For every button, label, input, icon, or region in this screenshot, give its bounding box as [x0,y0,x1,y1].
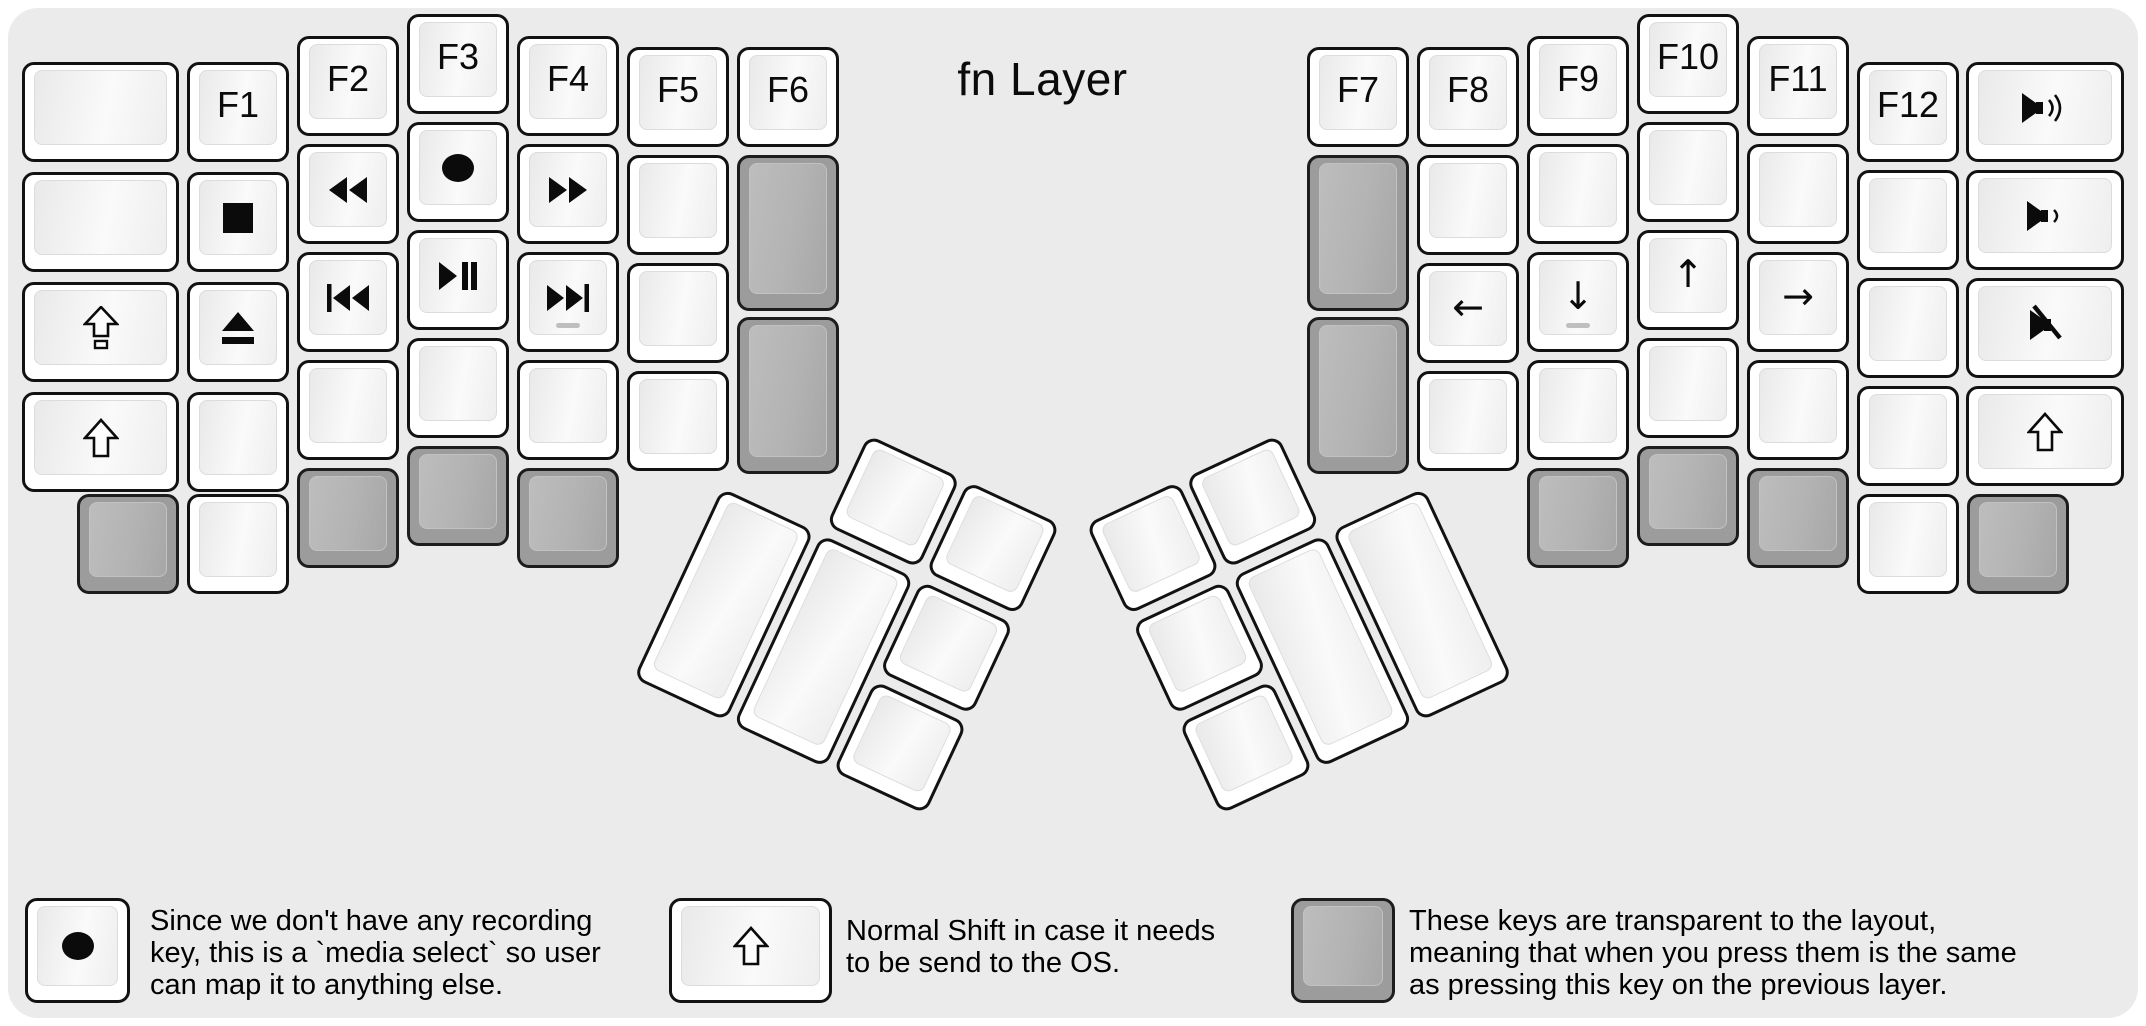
arrow-up-icon: ↑ [1672,255,1704,293]
key-blank [407,338,509,438]
keycap-top [34,290,167,365]
keycap-top [1759,368,1837,443]
key-label: F2 [327,58,369,100]
keycap-top [1978,286,2112,361]
keycap-top [639,163,717,238]
key-f1: F1 [187,62,289,162]
key-blank [1417,371,1519,471]
shift-icon [2027,412,2063,452]
keycap-top [529,260,607,335]
eject-icon [220,311,256,345]
legend-text-line: meaning that when you press them is the … [1409,937,2017,969]
key-play-pause [407,230,509,330]
key-label: F7 [1337,69,1379,111]
key-label: F11 [1768,58,1827,100]
key-f5: F5 [627,47,729,147]
keycap-top: F10 [1649,22,1727,97]
keycap-top [1100,494,1202,595]
key-prev-track [297,252,399,352]
key-blank [627,155,729,255]
mute-icon [2024,304,2066,344]
record-icon [60,930,96,962]
key-label: F10 [1657,36,1719,78]
key-transparent [407,446,509,546]
keycap-top [749,163,827,294]
keycap-top [309,368,387,443]
keyboard-layout-sheet: fn Layer F1F2F3F4F5F6F7F8←F9↓F10↑F11→F12… [0,0,2146,1026]
keycap-top [1978,70,2112,145]
keycap-top [1869,178,1947,253]
legend-text-line: key, this is a `media select` so user [150,937,601,969]
keycap-top [1759,476,1837,551]
key-blank [1857,494,1959,594]
key-volume-down [1966,170,2124,270]
key-arrow-right: → [1747,252,1849,352]
key-blank [1527,360,1629,460]
legend-text-line: can map it to anything else. [150,969,601,1001]
key-mute [1966,278,2124,378]
key-blank [1857,278,1959,378]
key-f8: F8 [1417,47,1519,147]
key-blank [1857,386,1959,486]
key-blank [1747,360,1849,460]
legend-text-line: to be send to the OS. [846,947,1215,979]
keycap-top [1539,152,1617,227]
arrow-right-icon: → [1782,277,1814,315]
key-caps-lock [22,282,179,382]
key-f4: F4 [517,36,619,136]
keycap-top [639,379,717,454]
key-transparent [1307,155,1409,311]
keycap-top [1978,178,2112,253]
keycap-top [1649,346,1727,421]
keycap-top [309,152,387,227]
key-transparent [517,468,619,568]
keycap-top [199,502,277,577]
key-fast-forward [517,144,619,244]
keycap-top [419,130,497,205]
keycap-top: F4 [529,44,607,119]
keycap-top: F3 [419,22,497,97]
key-transparent [737,155,839,311]
stop-icon [223,203,253,233]
keycap-top [1146,593,1248,694]
keycap-top [37,906,118,986]
keycap-top: ↓ [1539,260,1617,335]
key-transparent [1291,898,1395,1003]
legend-text: These keys are transparent to the layout… [1409,905,2017,1001]
keycap-top [1539,368,1617,443]
rewind-icon [329,177,367,203]
key-label: F1 [217,84,259,126]
legend-text: Normal Shift in case it needsto be send … [846,915,1215,979]
key-f3: F3 [407,14,509,114]
key-label: F12 [1877,84,1939,126]
key-f9: F9 [1527,36,1629,136]
key-arrow-up: ↑ [1637,230,1739,330]
next-track-icon [547,284,589,312]
legend-text-line: These keys are transparent to the layout… [1409,905,2017,937]
keycap-top [1759,152,1837,227]
shift-icon [733,926,769,966]
keycap-top [529,152,607,227]
key-blank [187,494,289,594]
key-blank [1637,338,1739,438]
key-blank [1747,144,1849,244]
keycap-top: F1 [199,70,277,145]
key-rewind [297,144,399,244]
key-arrow-left: ← [1417,263,1519,363]
keycap-top [1319,163,1397,294]
keycap-top [1193,693,1295,794]
keycap-top [529,368,607,443]
keycap-top [309,260,387,335]
key-f6: F6 [737,47,839,147]
keycap-top: F11 [1759,44,1837,119]
key-transparent [77,494,179,594]
keycap-top [419,454,497,529]
legend-text-line: Since we don't have any recording [150,905,601,937]
keycap-top [639,271,717,346]
keycap-top [309,476,387,551]
key-next-track [517,252,619,352]
key-transparent [1967,494,2069,594]
legend-text-line: as pressing this key on the previous lay… [1409,969,2017,1001]
key-blank [1527,144,1629,244]
keycap-top [199,180,277,255]
key-shift [22,392,179,492]
keycap-top: F9 [1539,44,1617,119]
key-eject [187,282,289,382]
keycap-top: ← [1429,271,1507,346]
keycap-top [419,346,497,421]
keycap-top: F2 [309,44,387,119]
layer-title: fn Layer [900,52,1185,106]
keycap-top: ↑ [1649,238,1727,313]
key-f12: F12 [1857,62,1959,162]
keycap-top [897,593,999,694]
keycap-top [34,400,167,475]
keycap-top [1869,394,1947,469]
record-icon [440,152,476,184]
keycap-top [844,447,946,548]
keycap-top: → [1759,260,1837,335]
key-record [25,898,130,1003]
keycap-top: F6 [749,55,827,130]
key-blank [1637,122,1739,222]
homing-bar [1566,323,1590,328]
key-label: F5 [657,69,699,111]
keycap-top: F7 [1319,55,1397,130]
key-transparent [1527,468,1629,568]
key-label: F6 [767,69,809,111]
keycap-top: F12 [1869,70,1947,145]
keycap-top [34,180,167,255]
key-label: F8 [1447,69,1489,111]
key-f10: F10 [1637,14,1739,114]
key-transparent [297,468,399,568]
key-label: F9 [1557,58,1599,100]
key-transparent [1637,446,1739,546]
key-record [407,122,509,222]
key-f11: F11 [1747,36,1849,136]
key-blank [22,62,179,162]
keycap-top [681,906,820,986]
keycap-top [1200,447,1302,548]
key-stop [187,172,289,272]
keycap-top [1979,502,2057,577]
keycap-top [1869,286,1947,361]
keycap-top [944,494,1046,595]
keycap-top [419,238,497,313]
fast-forward-icon [549,177,587,203]
key-f7: F7 [1307,47,1409,147]
caps-lock-icon [83,306,119,350]
keycap-top [1978,394,2112,469]
shift-icon [83,418,119,458]
keycap-top [1869,502,1947,577]
keycap-top [1649,454,1727,529]
key-blank [22,172,179,272]
key-blank [1857,170,1959,270]
keycap-top [89,502,167,577]
keycap-top [199,290,277,365]
arrow-down-icon: ↓ [1562,277,1594,315]
volume-up-icon [2022,91,2068,125]
legend-text-line: Normal Shift in case it needs [846,915,1215,947]
keycap-top [851,693,953,794]
key-volume-up [1966,62,2124,162]
key-blank [297,360,399,460]
play-pause-icon [439,262,477,290]
key-blank [1417,155,1519,255]
keycap-top [199,400,277,475]
homing-bar [556,323,580,328]
key-shift [669,898,832,1003]
keycap-top [1649,130,1727,205]
key-blank [627,263,729,363]
keycap-top [1303,906,1383,986]
key-transparent [1747,468,1849,568]
key-shift [1966,386,2124,486]
legend-text: Since we don't have any recordingkey, th… [150,905,601,1001]
keycap-top [529,476,607,551]
arrow-left-icon: ← [1452,288,1484,326]
keycap-top [1539,476,1617,551]
key-blank [517,360,619,460]
previous-track-icon [327,284,369,312]
key-blank [627,371,729,471]
keycap-top [1429,163,1507,238]
key-label: F3 [437,36,479,78]
key-f2: F2 [297,36,399,136]
key-label: F4 [547,58,589,100]
key-blank [187,392,289,492]
keycap-top: F8 [1429,55,1507,130]
keycap-top [34,70,167,145]
key-arrow-down: ↓ [1527,252,1629,352]
keycap-top [1429,379,1507,454]
volume-down-icon [2027,199,2063,233]
keycap-top: F5 [639,55,717,130]
